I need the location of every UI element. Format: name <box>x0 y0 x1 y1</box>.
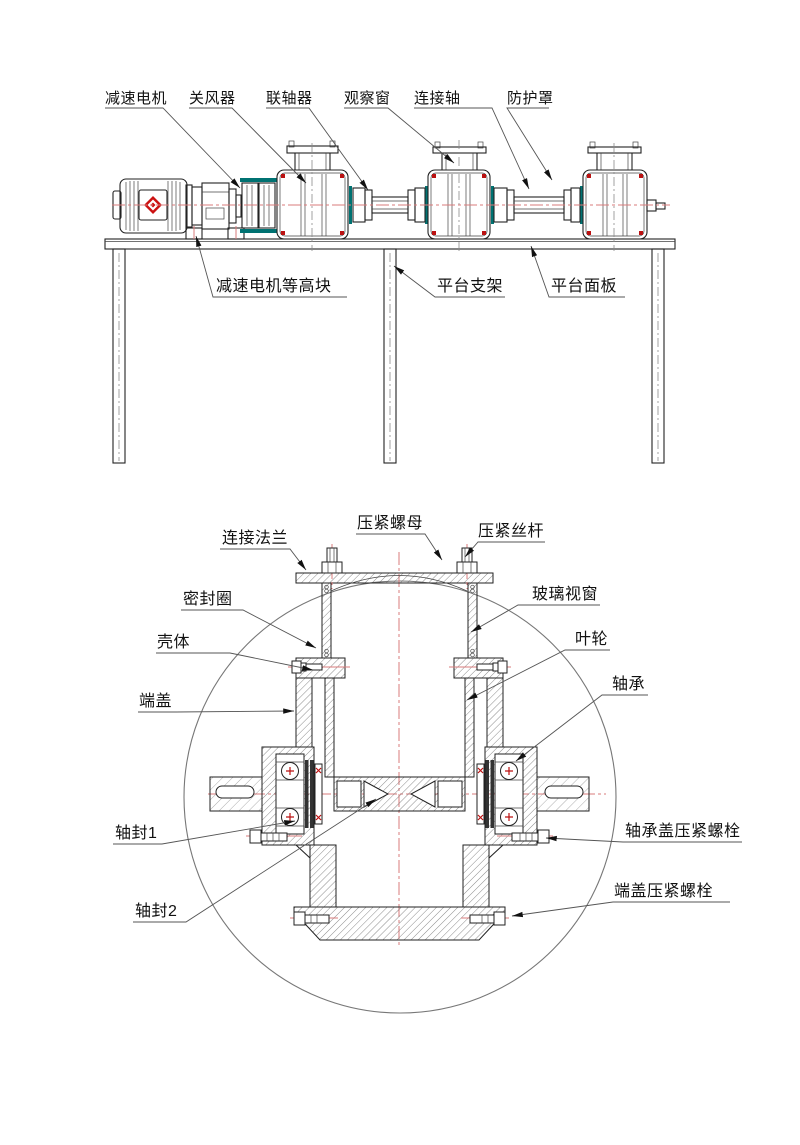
gearbox <box>186 183 244 241</box>
label-bearing-cover-bolt: 轴承盖压紧螺栓 <box>625 823 741 841</box>
assembly-drawing-svg <box>0 0 800 1145</box>
label-impeller: 叶轮 <box>575 631 608 649</box>
connecting-flange <box>296 544 493 589</box>
gear-motor <box>113 179 192 233</box>
label-observation-window: 观察窗 <box>344 90 391 107</box>
compression-screw-left <box>322 548 342 573</box>
label-protective-cover: 防护罩 <box>507 90 554 107</box>
label-bearing: 轴承 <box>612 676 645 694</box>
label-end-cover: 端盖 <box>139 693 172 711</box>
end-cover-left <box>262 747 322 845</box>
label-platform-panel: 平台面板 <box>551 278 617 296</box>
label-motor-riser-block: 减速电机等高块 <box>216 278 332 296</box>
compression-screw-right <box>457 548 477 573</box>
label-housing: 壳体 <box>157 634 190 652</box>
label-platform-support: 平台支架 <box>437 278 503 296</box>
label-rotary-valve: 关风器 <box>189 90 236 107</box>
end-cover-right <box>477 747 537 845</box>
label-coupling: 联轴器 <box>266 90 313 107</box>
technical-drawing-page: 减速电机 关风器 联轴器 观察窗 连接轴 防护罩 减速电机等高块 平台支架 平台… <box>0 0 800 1145</box>
label-compression-screw: 压紧丝杆 <box>478 523 544 541</box>
platform <box>105 239 675 463</box>
label-shaft-seal-2: 轴封2 <box>135 903 177 921</box>
rotary-valve-3 <box>583 142 665 251</box>
rotary-valve-2 <box>428 140 490 251</box>
label-connecting-flange: 连接法兰 <box>222 530 288 548</box>
label-compression-nut: 压紧螺母 <box>357 515 423 533</box>
label-seal-ring: 密封圈 <box>183 591 233 609</box>
label-gear-motor: 减速电机 <box>105 90 167 107</box>
label-glass-window: 玻璃视窗 <box>532 586 598 604</box>
rotary-valve-1 <box>277 141 348 251</box>
label-connecting-shaft: 连接轴 <box>414 90 461 107</box>
impeller-hub <box>334 777 465 811</box>
label-shaft-seal-1: 轴封1 <box>115 825 157 843</box>
label-end-cover-bolt: 端盖压紧螺栓 <box>614 883 713 901</box>
